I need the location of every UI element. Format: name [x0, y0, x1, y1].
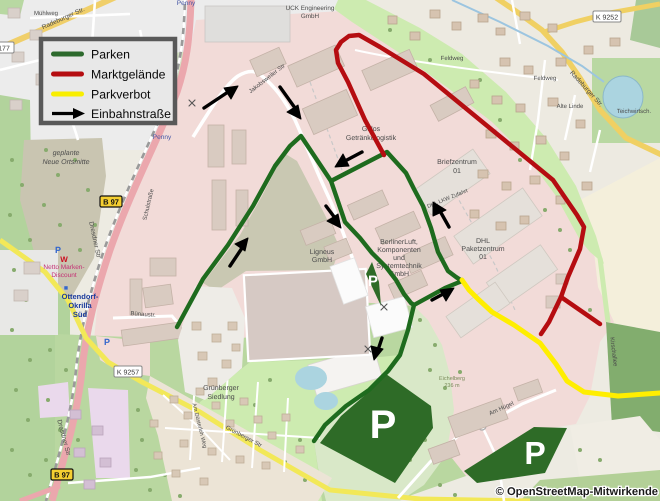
svg-text:Alte Linde: Alte Linde: [557, 103, 584, 110]
svg-text:Discount: Discount: [51, 272, 76, 279]
svg-text:B 97: B 97: [103, 198, 119, 207]
svg-text:P: P: [55, 245, 61, 255]
svg-text:Paketzentrum: Paketzentrum: [461, 245, 504, 253]
svg-text:Süd: Süd: [73, 310, 88, 319]
svg-text:Netto Marken-: Netto Marken-: [43, 264, 84, 271]
svg-text:01: 01: [453, 168, 461, 175]
svg-text:Mühlweg: Mühlweg: [34, 10, 58, 17]
svg-text:01: 01: [479, 254, 487, 261]
svg-text:Penny: Penny: [153, 134, 172, 141]
svg-text:Komponenten: Komponenten: [377, 247, 421, 254]
svg-text:Parkverbot: Parkverbot: [91, 88, 151, 102]
svg-text:P: P: [368, 273, 378, 290]
svg-text:236 m: 236 m: [444, 383, 460, 389]
svg-text:Eichelberg: Eichelberg: [439, 376, 465, 382]
svg-text:Neue Ortsmitte: Neue Ortsmitte: [42, 158, 89, 166]
svg-text:Einbahnstraße: Einbahnstraße: [91, 107, 171, 121]
svg-text:UCK Engineering: UCK Engineering: [286, 5, 335, 12]
svg-text:B 97: B 97: [54, 471, 70, 480]
svg-text:Ligneus: Ligneus: [310, 248, 335, 256]
svg-text:P: P: [524, 435, 545, 471]
svg-text:Teichwirtsch.: Teichwirtsch.: [617, 108, 652, 115]
svg-text:Siedlung: Siedlung: [207, 393, 234, 401]
svg-text:P: P: [370, 403, 397, 447]
svg-text:GmbH: GmbH: [301, 13, 320, 20]
svg-text:P: P: [104, 337, 110, 347]
svg-text:BerlinerLuft,: BerlinerLuft,: [380, 238, 418, 246]
svg-text:geplante: geplante: [53, 149, 80, 157]
svg-text:W: W: [60, 255, 68, 264]
svg-text:Penny: Penny: [177, 0, 196, 7]
svg-text:Parken: Parken: [91, 48, 130, 62]
svg-text:K 9252: K 9252: [596, 15, 618, 22]
svg-text:Feldweg: Feldweg: [441, 55, 464, 62]
svg-text:Okrilla: Okrilla: [68, 301, 92, 310]
svg-text:DHL: DHL: [476, 238, 490, 245]
svg-text:© OpenStreetMap-Mitwirkende: © OpenStreetMap-Mitwirkende: [496, 486, 658, 498]
svg-text:K 9257: K 9257: [117, 370, 139, 377]
svg-text:Grünberger: Grünberger: [203, 384, 239, 392]
svg-text:Feldweg: Feldweg: [534, 75, 557, 82]
svg-text:Briefzentrum: Briefzentrum: [437, 158, 477, 166]
svg-text:177: 177: [0, 46, 10, 53]
svg-text:Ottendorf-: Ottendorf-: [62, 292, 99, 301]
svg-text:Marktgelände: Marktgelände: [91, 68, 166, 82]
svg-text:GmbH: GmbH: [312, 256, 332, 264]
svg-text:■: ■: [64, 285, 68, 292]
svg-text:und: und: [393, 254, 405, 262]
